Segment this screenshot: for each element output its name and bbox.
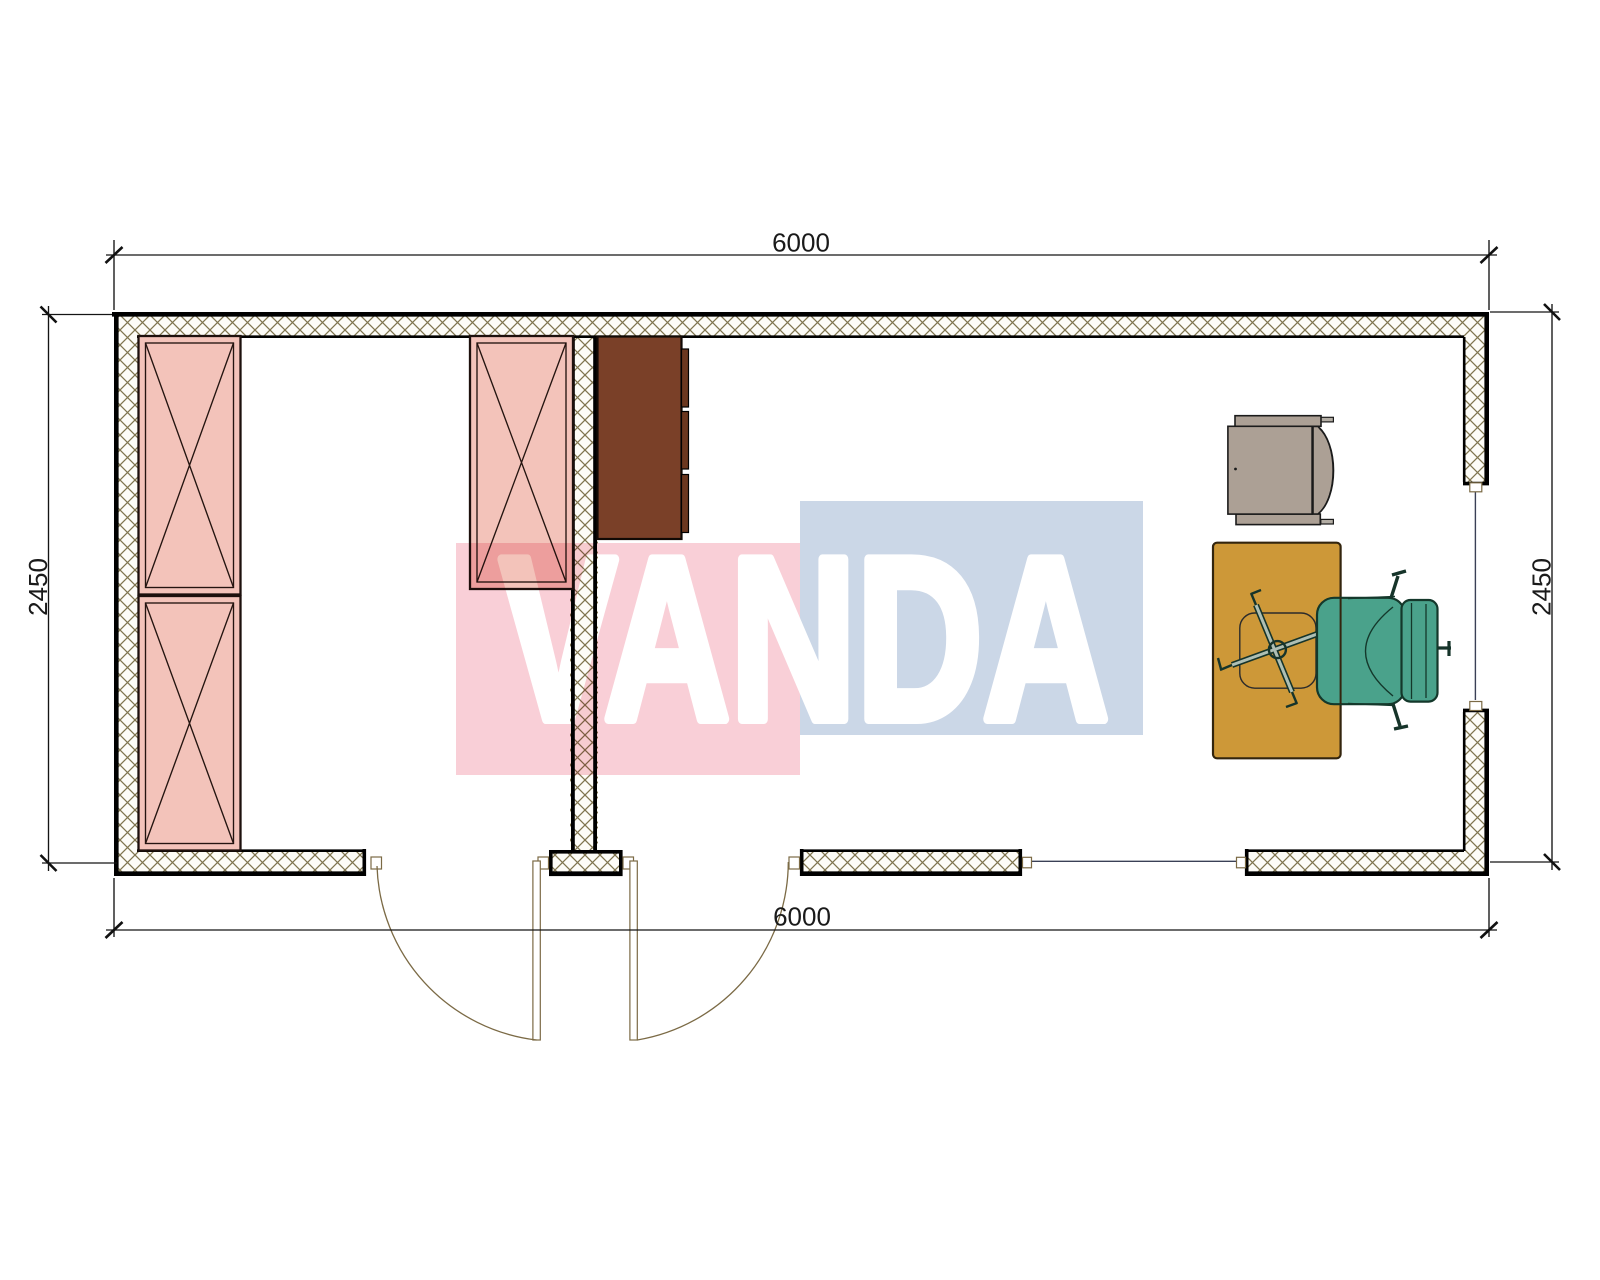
svg-text:2450: 2450 <box>1527 558 1557 616</box>
svg-text:2450: 2450 <box>23 558 53 616</box>
svg-text:6000: 6000 <box>772 228 830 258</box>
svg-text:6000: 6000 <box>773 902 831 932</box>
